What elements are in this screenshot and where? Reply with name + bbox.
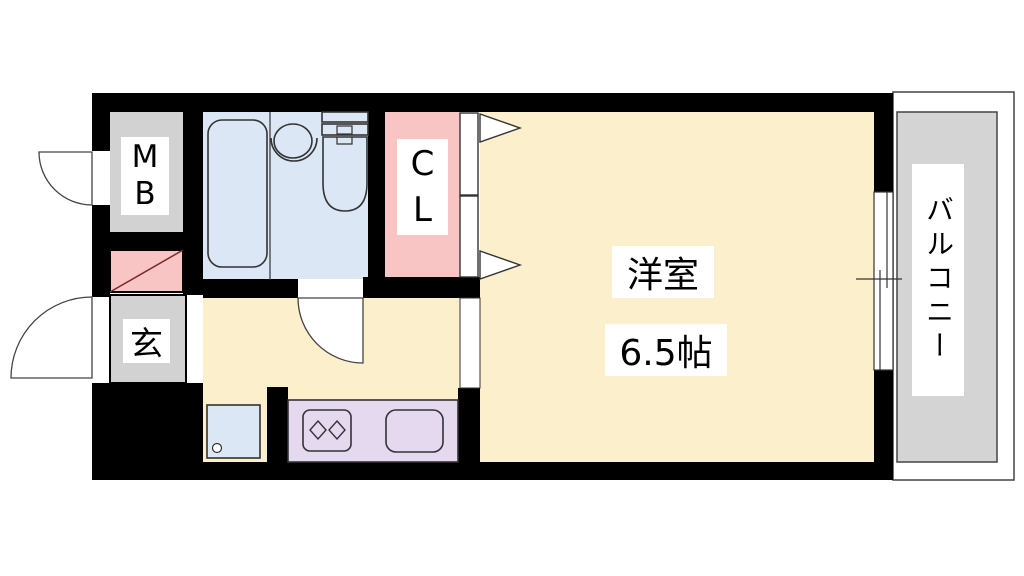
- genkan-step-strip: [186, 295, 203, 383]
- mb-door-arc: [39, 152, 92, 205]
- washer-drain: [213, 444, 222, 453]
- wall-left-upper: [92, 93, 110, 152]
- floor-plan: M B C L 玄 洋室 6.5帖 バルコニー: [0, 0, 1024, 576]
- wall-below-closet: [363, 277, 480, 298]
- opening-kitchen-room: [460, 298, 480, 388]
- main-room-name: 洋室: [612, 246, 714, 298]
- entrance-door-arc: [11, 297, 92, 378]
- window-frame: [874, 192, 893, 370]
- closet-label: C L: [397, 139, 448, 235]
- wall-bottom-left-block: [92, 383, 203, 480]
- wall-right-lower: [874, 370, 893, 462]
- closet-door-panel-top: [460, 113, 478, 195]
- balcony-label: バルコニー: [912, 164, 964, 396]
- wall-bath-kitchen-left: [203, 279, 298, 298]
- opening-entrance-door: [92, 297, 110, 383]
- wall-bath-closet-divider: [368, 112, 385, 278]
- floor-plan-drawing: [0, 0, 1024, 576]
- meter-box-label: M B: [121, 137, 169, 215]
- closet-door-panel-bottom: [460, 196, 478, 277]
- wall-right-upper: [874, 112, 893, 192]
- wall-below-mb: [110, 232, 183, 250]
- shoe-cabinet: [110, 250, 183, 292]
- wall-bottom: [203, 462, 893, 480]
- opening-mb-door: [92, 151, 110, 205]
- wall-washer-counter-divider: [267, 387, 288, 462]
- main-room-size: 6.5帖: [605, 324, 727, 376]
- wall-top: [92, 93, 893, 112]
- opening-bathroom-door: [298, 279, 363, 298]
- washing-machine-space: [207, 405, 260, 458]
- wall-kitchen-room-lower: [458, 388, 480, 462]
- entrance-label: 玄: [123, 319, 170, 363]
- wall-mb-bath-divider: [183, 112, 203, 295]
- kitchen-unit: [288, 400, 458, 462]
- wall-left-middle: [92, 205, 110, 297]
